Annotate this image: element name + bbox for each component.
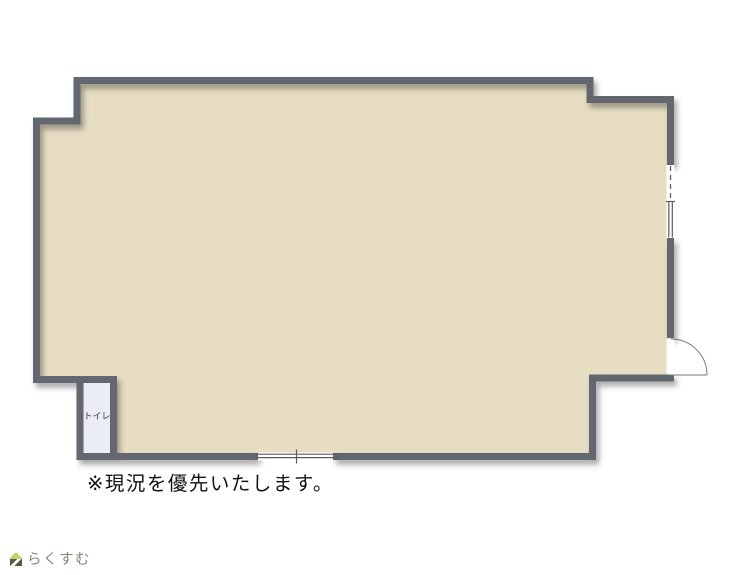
- toilet-label: トイレ: [83, 410, 111, 422]
- entry-door-arc: [671, 339, 707, 375]
- house-icon: [9, 552, 23, 566]
- floorplan-canvas: トイレ ※現況を優先いたします。 らくすむ: [0, 0, 743, 575]
- site-logo-text: らくすむ: [27, 548, 91, 569]
- site-logo: らくすむ: [9, 548, 91, 569]
- caption-note: ※現況を優先いたします。: [87, 472, 334, 496]
- house-roof-icon: [9, 552, 23, 559]
- entry-door-opening: [667, 339, 675, 375]
- house-body-icon: [10, 559, 22, 566]
- main-room-floor: [37, 81, 671, 457]
